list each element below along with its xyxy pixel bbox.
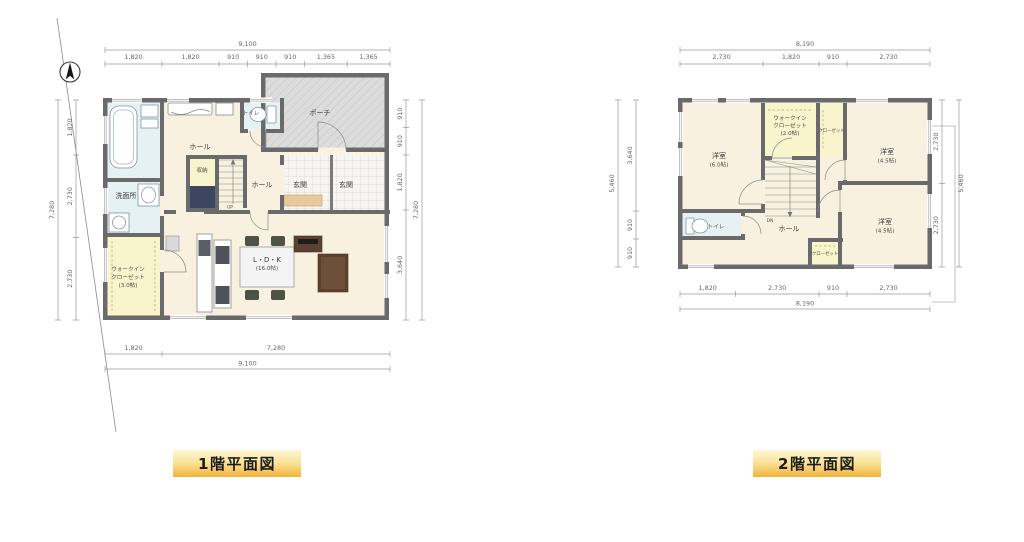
room-label-wic2b: クローゼット — [773, 122, 807, 130]
room-label-hall: ホール — [190, 143, 211, 151]
room-label-bedroom3: 洋室 — [878, 217, 892, 226]
floor1-plan: 9,100 1,820 1,820 910 910 910 1,365 1,36… — [48, 40, 425, 372]
dim-text: 1,820 — [181, 53, 199, 61]
tv — [298, 239, 318, 244]
dim-text: 910 — [284, 53, 296, 61]
stair-void — [190, 186, 215, 208]
room-label-closet-bottom: クローゼット — [812, 250, 838, 257]
room-area-ldk: (16.0帖) — [256, 264, 278, 272]
north-arrow-icon — [60, 62, 80, 82]
room-area-wic: (3.0帖) — [119, 281, 138, 289]
room-label-hall-entry: ホール — [252, 181, 273, 189]
window — [246, 315, 292, 321]
dim-text: 2,730 — [66, 187, 74, 205]
room-label-wic2: クローゼット — [111, 273, 145, 281]
dim-text: 5,460 — [608, 174, 616, 192]
dim-text: 1,820 — [124, 53, 142, 61]
window — [726, 98, 750, 104]
dim-text: 8,190 — [796, 40, 814, 48]
window — [103, 188, 109, 214]
entrance-step — [284, 195, 322, 206]
dim-text: 3,640 — [396, 256, 404, 274]
dim-text: 7,280 — [412, 201, 420, 219]
dim-text: 1,365 — [359, 53, 377, 61]
window — [678, 148, 684, 176]
chair — [271, 290, 285, 300]
room-area-bedroom3: (4.5帖) — [876, 227, 895, 235]
dim-text: 910 — [396, 108, 404, 120]
chair — [245, 236, 259, 246]
hall-counter — [168, 103, 212, 115]
window — [927, 120, 933, 154]
window — [856, 98, 888, 104]
chair — [271, 236, 285, 246]
dim-text: 9,100 — [238, 40, 256, 48]
window — [112, 98, 142, 104]
stairs-up-label: UP — [227, 205, 233, 211]
stairs-down-label: DN — [767, 218, 774, 224]
room-area-bedroom-main: (6.0帖) — [710, 161, 729, 169]
dim-text: 1,820 — [782, 53, 800, 61]
sofa-cushion — [321, 257, 345, 289]
dim-text: 8,190 — [796, 300, 814, 308]
bath-counter — [141, 105, 158, 117]
room-area-wic2: (2.0帖) — [781, 129, 800, 137]
window — [103, 116, 109, 144]
chair — [245, 290, 259, 300]
window — [688, 264, 714, 270]
toilet-icon-2f — [686, 218, 708, 234]
lower-roof-outline — [932, 126, 955, 302]
room-area-bedroom2: (4.5帖) — [878, 157, 897, 165]
dim-text: 3,640 — [626, 146, 634, 164]
dim-text: 7,280 — [267, 344, 285, 352]
bath-shelf — [141, 119, 158, 128]
bathtub-icon — [110, 106, 137, 168]
dim-text: 910 — [227, 53, 239, 61]
floor2-caption-label: 2階平面図 — [778, 453, 856, 474]
window — [170, 315, 206, 321]
wic2-floor — [765, 103, 816, 156]
room-label-ldk: L・D・K — [253, 256, 281, 264]
dim-text: 910 — [396, 135, 404, 147]
dim-text: 910 — [256, 53, 268, 61]
counter-appliance — [216, 286, 230, 304]
room-label-toilet2: トイレ — [708, 225, 725, 231]
floorplan-sheet: 9,100 1,820 1,820 910 910 910 1,365 1,36… — [0, 0, 1024, 542]
window — [167, 98, 189, 104]
dim-text: 9,100 — [238, 360, 256, 368]
room-label-toilet: トイレ — [243, 111, 260, 117]
window — [854, 264, 894, 270]
room-label-washroom: 洗面所 — [116, 191, 137, 200]
shoe-box — [216, 103, 233, 115]
dim-text: 2,730 — [879, 284, 897, 292]
room-label-porch: ポーチ — [310, 109, 331, 117]
window — [692, 98, 718, 104]
dim-text: 1,820 — [66, 118, 74, 136]
window — [103, 248, 109, 282]
room-label-entrance2: 玄関 — [339, 180, 353, 189]
refrigerator — [166, 236, 179, 251]
floor1-caption-label: 1階平面図 — [198, 453, 276, 474]
dim-text: 1,365 — [317, 53, 335, 61]
stove — [216, 246, 230, 264]
window — [384, 274, 390, 298]
dim-text: 1,820 — [699, 284, 717, 292]
floor1-caption: 1階平面図 — [173, 450, 301, 477]
dim-text: 2,730 — [932, 133, 940, 151]
window — [678, 112, 684, 142]
dim-text: 1,820 — [124, 344, 142, 352]
room-label-wic2: ウォークイン — [773, 114, 807, 122]
dim-text: 2,730 — [768, 284, 786, 292]
dim-text: 2,730 — [712, 53, 730, 61]
dim-text: 2,730 — [879, 53, 897, 61]
washbasin-icon — [138, 184, 159, 206]
room-label-hall2: ホール — [779, 225, 800, 233]
dim-text: 910 — [827, 53, 839, 61]
room-label-wic: ウォークイン — [111, 265, 145, 273]
dim-text: 1,820 — [396, 173, 404, 191]
window — [927, 194, 933, 228]
room-label-bedroom2: 洋室 — [880, 147, 894, 156]
kitchen-sink — [199, 240, 211, 256]
dim-text: 910 — [626, 247, 634, 259]
room-label-entrance: 玄関 — [293, 180, 307, 189]
dim-text: 910 — [827, 284, 839, 292]
dim-text: 5,460 — [957, 174, 965, 192]
floor2-caption: 2階平面図 — [753, 450, 881, 477]
room-label-storage: 収納 — [196, 166, 208, 174]
window — [250, 98, 272, 104]
dim-text: 2,730 — [66, 270, 74, 288]
dim-text: 2,730 — [932, 216, 940, 234]
floor2-plan: 8,190 2,730 1,820 910 2,730 1,820 2,730 … — [608, 40, 965, 312]
washing-machine-icon — [109, 213, 129, 232]
window — [384, 226, 390, 262]
room-label-closet-top: クローゼット — [818, 127, 844, 134]
dim-text: 910 — [626, 219, 634, 231]
room-label-bedroom-main: 洋室 — [712, 151, 726, 160]
dim-text: 7,280 — [48, 201, 56, 219]
